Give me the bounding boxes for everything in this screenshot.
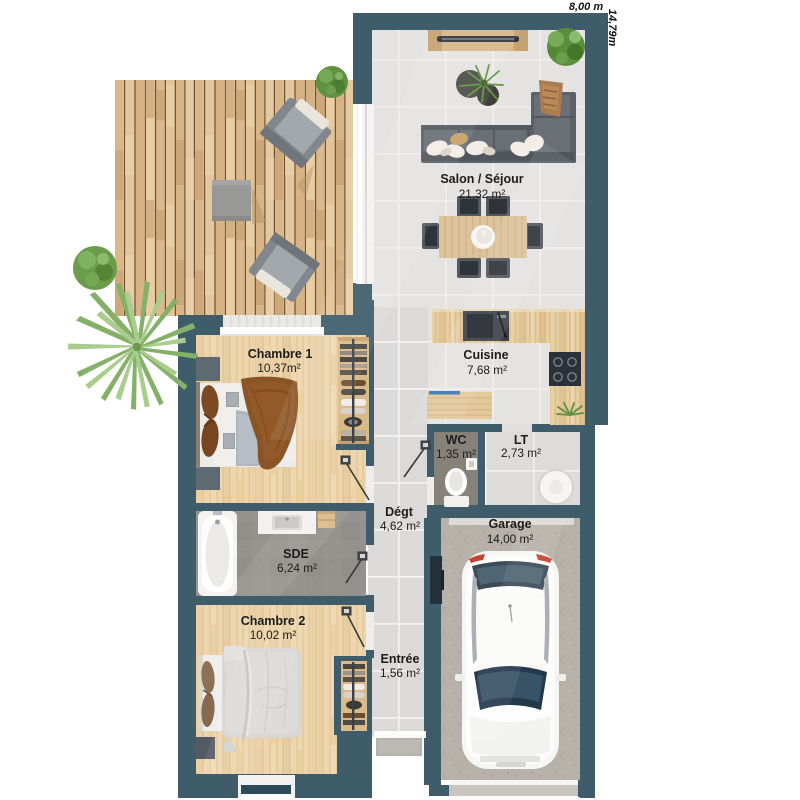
svg-text:Chambre 2: Chambre 2 <box>241 614 306 628</box>
svg-text:WC: WC <box>446 433 467 447</box>
svg-text:Cuisine: Cuisine <box>463 348 508 362</box>
svg-text:2,73 m²: 2,73 m² <box>501 446 541 460</box>
svg-text:4,62 m²: 4,62 m² <box>380 519 420 533</box>
svg-text:Chambre 1: Chambre 1 <box>248 347 313 361</box>
svg-text:1,56 m²: 1,56 m² <box>380 666 420 680</box>
svg-text:Dégt: Dégt <box>385 505 414 519</box>
svg-text:LT: LT <box>514 433 529 447</box>
svg-text:21,32 m²: 21,32 m² <box>459 187 506 201</box>
svg-text:Salon / Séjour: Salon / Séjour <box>440 172 523 186</box>
svg-text:10,37m²: 10,37m² <box>257 361 300 375</box>
svg-text:SDE: SDE <box>283 547 309 561</box>
svg-text:14,00 m²: 14,00 m² <box>487 532 534 546</box>
svg-text:8,00 m: 8,00 m <box>569 1 603 13</box>
svg-text:14,79m: 14,79m <box>606 9 618 47</box>
svg-text:6,24 m²: 6,24 m² <box>277 561 317 575</box>
svg-text:Entrée: Entrée <box>381 652 420 666</box>
svg-text:7,68 m²: 7,68 m² <box>467 363 507 377</box>
svg-text:1,35 m²: 1,35 m² <box>436 447 476 461</box>
svg-text:Garage: Garage <box>488 517 531 531</box>
svg-text:10,02 m²: 10,02 m² <box>250 628 297 642</box>
